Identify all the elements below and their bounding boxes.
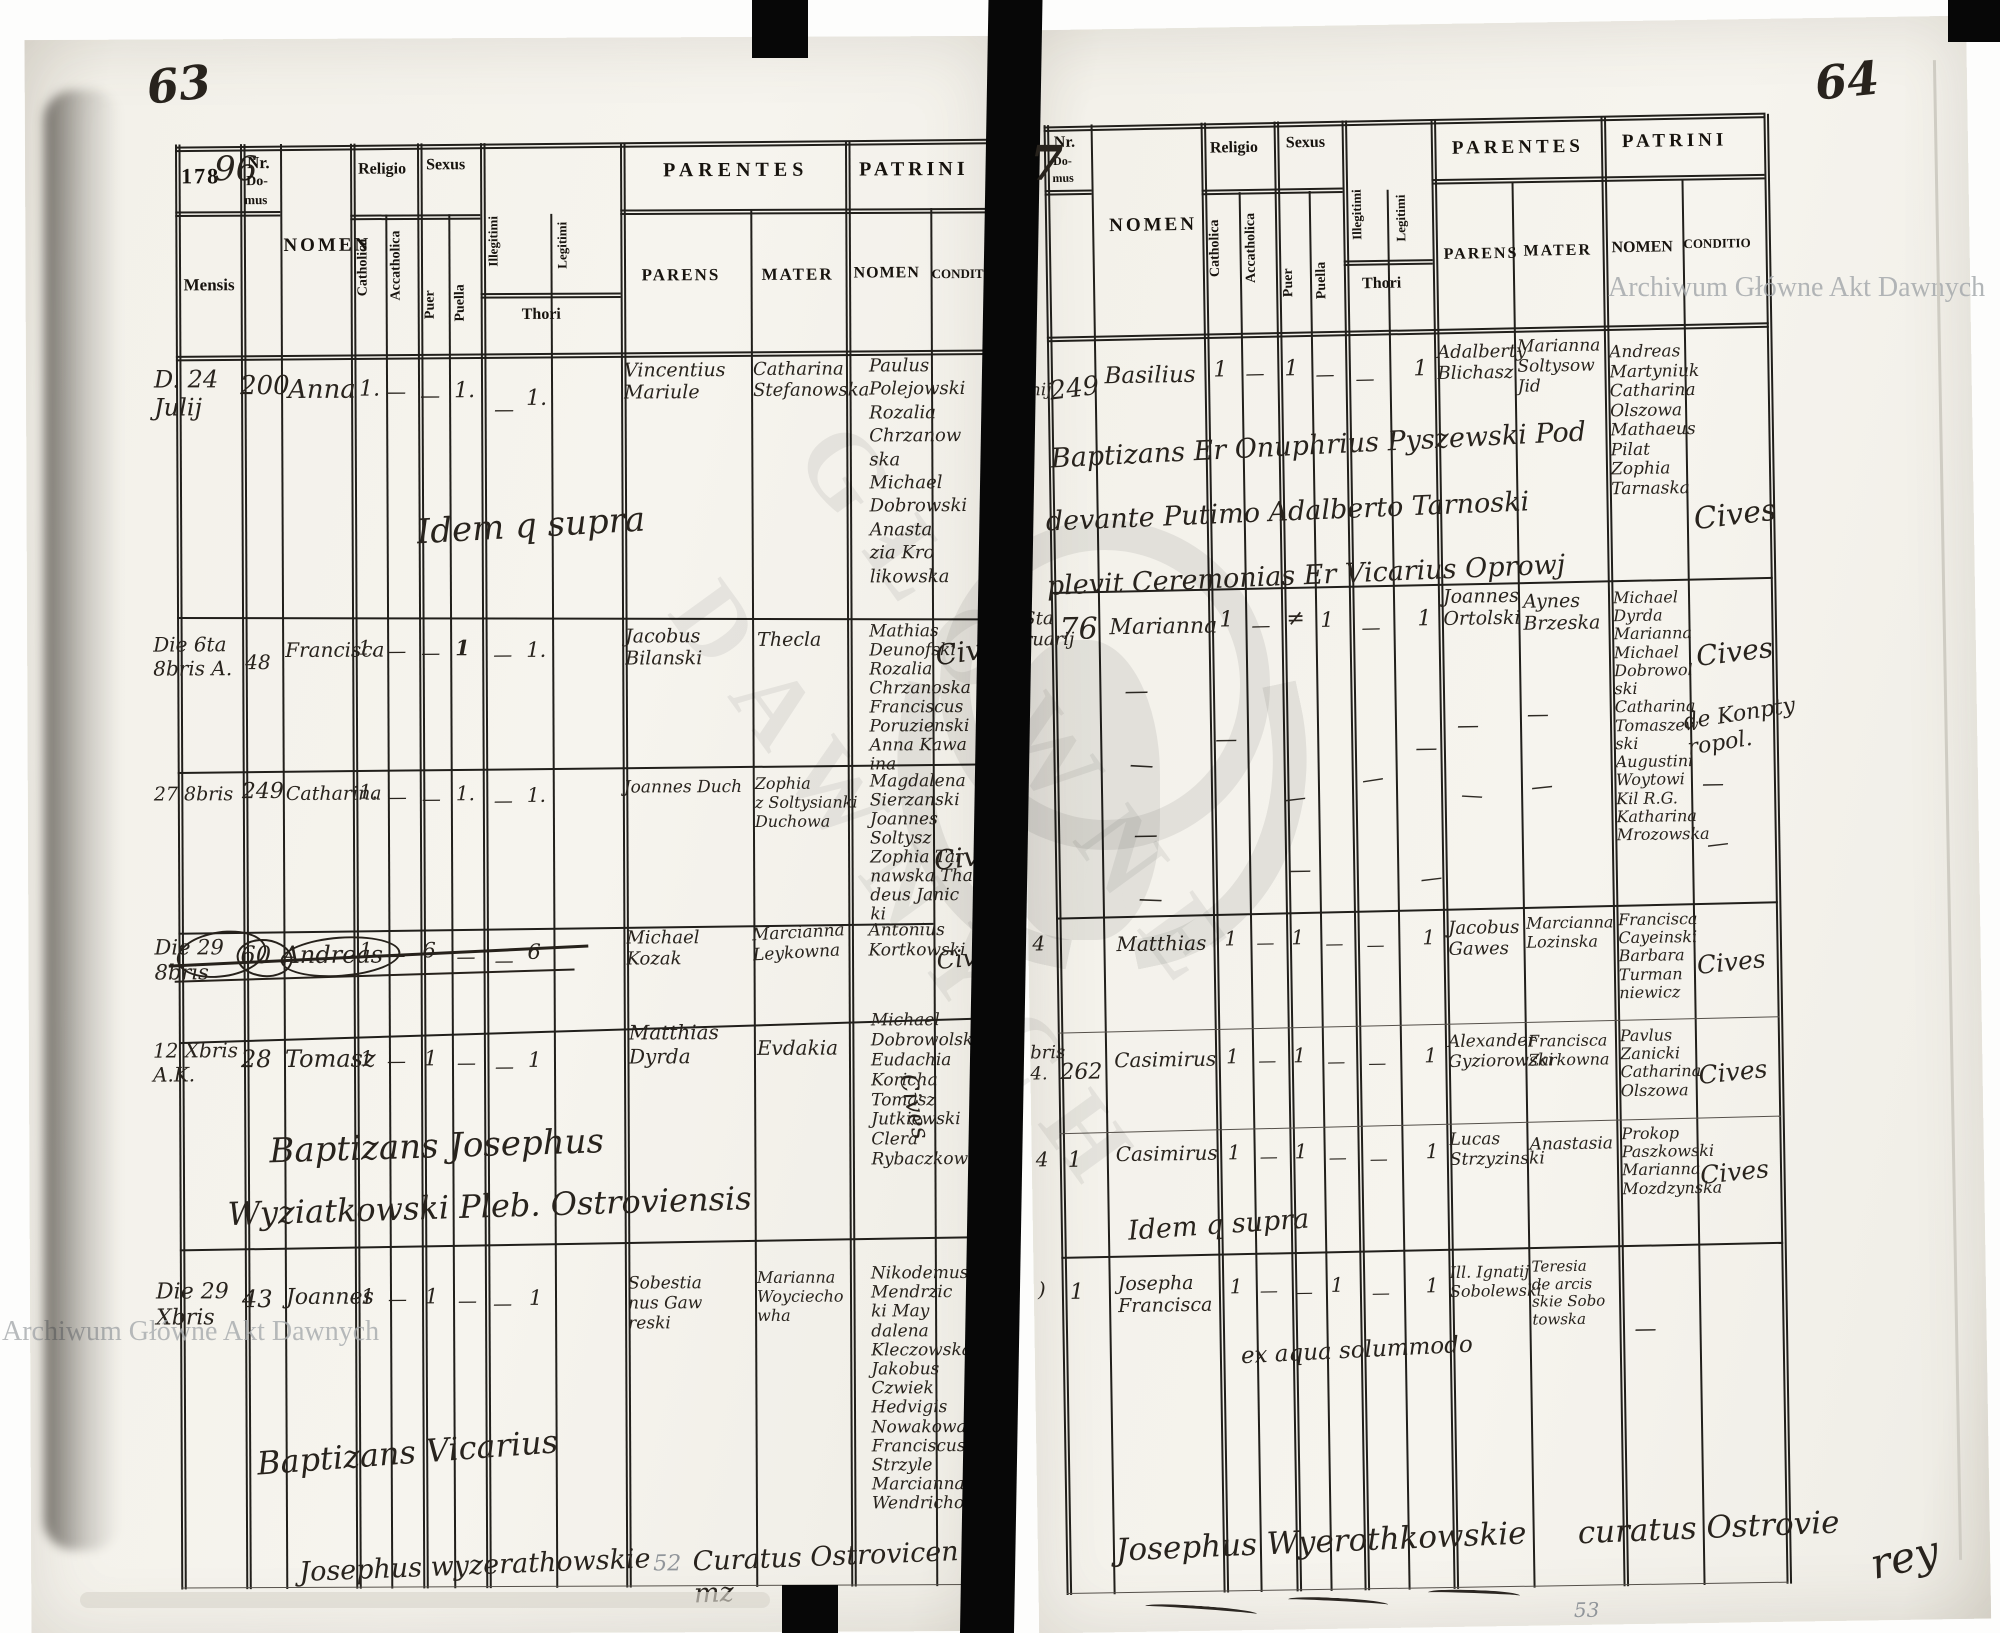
- row-line: [177, 617, 990, 620]
- header-mater: MATER: [762, 265, 834, 285]
- header-puer: Puer: [423, 290, 439, 319]
- entry-conditio: Cives: [1692, 493, 1778, 538]
- col-line: [1309, 191, 1333, 1591]
- entry-mater: Francisca Zarkowna: [1528, 1031, 1610, 1070]
- col-line: [240, 144, 248, 1589]
- col-line: [550, 214, 558, 1588]
- row-line: [1044, 113, 1766, 129]
- mark-illegitimi: —: [1372, 1283, 1390, 1305]
- col-line: [350, 144, 358, 1589]
- mark-legitimi: 1: [1417, 606, 1431, 632]
- ditto-mark: —: [1527, 702, 1549, 727]
- entry-parens: Matthias Dyrda: [629, 1021, 719, 1069]
- mark-puella: —: [1329, 1148, 1347, 1170]
- mark-puer: 1: [424, 1046, 437, 1071]
- signature-right-part2: curatus Ostrovie: [1577, 1504, 1840, 1552]
- ditto-mark: —: [1460, 783, 1483, 809]
- mark-puella: —: [457, 1052, 476, 1074]
- paper-edge-bottom-left: [80, 1592, 770, 1608]
- watermark-archive-top-right: Archiwum Główne Akt Dawnych: [1608, 272, 1985, 304]
- note-ex-aqua: ex aqua solummodo: [1240, 1332, 1473, 1371]
- mark-acatholica: —: [1245, 363, 1264, 386]
- header-sexus: Sexus: [426, 156, 465, 174]
- col-line: [1387, 190, 1411, 1590]
- mark-illegitimi: —: [494, 790, 513, 812]
- mark-legitimi: 1: [528, 1048, 541, 1073]
- entry-date: Die 6ta 8bris A.: [153, 633, 232, 681]
- entry-mater: Evdakia: [757, 1037, 838, 1061]
- mark-puella: —: [458, 1290, 477, 1312]
- mark-legitimi: 1: [1426, 1140, 1439, 1164]
- entry-nr: 1: [1070, 1280, 1084, 1306]
- ditto-mark: —: [1457, 713, 1479, 738]
- entry-date: ): [1038, 1278, 1046, 1302]
- mark-acatholica: —: [387, 640, 406, 662]
- row-line: [481, 293, 621, 296]
- mark-puer: —: [420, 384, 440, 408]
- header-parens: PARENS: [642, 265, 721, 285]
- entry-conditio: Cives: [1695, 944, 1767, 980]
- row-line: [175, 139, 988, 149]
- entry-patrini: —: [1634, 1317, 1656, 1343]
- entry-mater: Marianna Woyciecho wha: [757, 1269, 844, 1326]
- header-religio: Religio: [358, 160, 406, 178]
- row-line: [620, 208, 988, 212]
- col-line: [1342, 120, 1367, 1590]
- mark-acatholica: —: [1260, 1147, 1278, 1169]
- col-line: [750, 209, 758, 1587]
- mark-legitimi: 1.: [526, 386, 547, 412]
- note-baptizans-line2: Wyziatkowski Pleb. Ostroviensis: [227, 1180, 752, 1234]
- entry-name: Anna: [288, 375, 356, 406]
- mark-illegitimi: —: [1370, 1149, 1388, 1171]
- note-baptizans-line1: Baptizans Er Onuphrius Pyszewski Pod: [1050, 416, 1587, 475]
- right-page-number: 64: [1812, 50, 1881, 111]
- header-legitimi: Legitimi: [1393, 194, 1410, 241]
- header-patrini: PATRINI: [1622, 129, 1728, 153]
- entry-mater: Marcianna Lozinska: [1526, 913, 1614, 952]
- mark-legitimi: 1: [1424, 1044, 1437, 1068]
- ditto-mark: —: [1702, 772, 1724, 797]
- row-line: [180, 1236, 993, 1251]
- mark-puer: 1: [1291, 926, 1304, 950]
- entry-parens: Adalberty Blichasz: [1437, 341, 1527, 385]
- mark-acatholica: —: [386, 380, 406, 404]
- mark-legitimi: 1: [1426, 1274, 1439, 1298]
- col-line: [417, 143, 425, 1588]
- mark-acatholica: —: [1260, 1281, 1278, 1303]
- header-parentes: PARENTES: [663, 159, 808, 183]
- ditto-mark: —: [1289, 858, 1311, 883]
- entry-conditio: Cives: [1699, 1154, 1771, 1190]
- mark-illegitimi: —: [1355, 368, 1374, 391]
- mark-puer: 1: [1293, 1044, 1306, 1068]
- note-idem-supra: Idem q supra: [1127, 1203, 1310, 1247]
- entry-parens: Michael Kozak: [626, 927, 699, 970]
- header-illegitimi: Illegitimi: [485, 216, 501, 267]
- mark-catholica: 1: [1226, 1045, 1239, 1069]
- header-religio: Religio: [1210, 139, 1258, 158]
- ditto-mark: —: [1530, 773, 1554, 800]
- mark-illegitimi: —: [1368, 1053, 1386, 1075]
- entry-parens: Sobestia nus Gaw reski: [628, 1273, 703, 1333]
- mark-puella: —: [1325, 934, 1343, 956]
- entry-name: Josepha Francisca: [1118, 1272, 1213, 1318]
- col-line: [385, 215, 393, 1589]
- entry-parens: Jacobus Gawes: [1448, 917, 1520, 961]
- entry-nr: 249: [242, 779, 284, 805]
- header-parentes: PARENTES: [1452, 136, 1584, 160]
- row-line: [176, 349, 989, 357]
- mark-catholica: 1: [360, 1047, 373, 1072]
- entry-patrini: Francisca Cayeinski Barbara Turman niewi…: [1618, 910, 1699, 1002]
- ditto-mark: —: [1706, 830, 1731, 857]
- header-nr-line2: Do-: [246, 174, 268, 190]
- mark-legitimi: 1: [1413, 356, 1427, 382]
- col-line: [1600, 116, 1625, 1586]
- header-patrini-nomen: NOMEN: [854, 264, 920, 282]
- mark-puer: —: [422, 788, 441, 810]
- header-legitimi: Legitimi: [554, 222, 570, 269]
- col-line: [1431, 119, 1456, 1589]
- header-acatholica: Accatholica: [388, 230, 404, 300]
- mark-catholica: 1: [1228, 1141, 1241, 1165]
- mark-acatholica: —: [388, 1288, 407, 1310]
- entry-mater: Marcianna Leykowna: [751, 920, 846, 965]
- row-line: [1431, 174, 1764, 181]
- spine-shadow-left: [44, 90, 120, 1550]
- header-illegitimi: Illegitimi: [1349, 189, 1366, 240]
- entry-conditio: Cives: [1697, 1054, 1769, 1090]
- row-line: [1047, 322, 1769, 338]
- pencil-number: 53: [1574, 1598, 1600, 1622]
- mark-catholica: 1: [361, 1285, 374, 1310]
- entry-mater: Catharina Stefanowska: [753, 358, 870, 401]
- mark-acatholica: —: [387, 1050, 406, 1072]
- col-line: [480, 143, 488, 1588]
- entry-parens: Vincentius Mariule: [624, 359, 726, 404]
- signature-right-part1: Josephus Wyerothkowskie: [1115, 1515, 1527, 1569]
- pencil-number: 52: [653, 1551, 681, 1576]
- mark-catholica: 1.: [358, 637, 377, 661]
- row-line: [175, 211, 280, 213]
- scanned-register-spread: 63 178 96 Nr. Do- mus Mensis: [0, 0, 2000, 1633]
- entry-nr: 200: [240, 371, 290, 402]
- col-line: [448, 214, 456, 1588]
- header-thori: Thori: [522, 306, 561, 324]
- entry-mater: Anastasia: [1529, 1133, 1613, 1154]
- ditto-mark: —: [1419, 865, 1444, 892]
- mark-puella: 1: [455, 636, 470, 661]
- header-mensis: Mensis: [184, 275, 235, 295]
- entry-name: Basilius: [1104, 362, 1196, 391]
- header-nomen: NOMEN: [1109, 214, 1197, 237]
- header-acatholica: Accatholica: [1243, 213, 1260, 283]
- entry-nr: 249: [1048, 371, 1101, 407]
- header-puella: Puella: [453, 284, 469, 321]
- mark-puer: ≠: [1286, 606, 1305, 632]
- header-patrini-nomen: NOMEN: [1611, 238, 1673, 257]
- mark-legitimi: 1.: [526, 638, 546, 663]
- mark-puer: —: [421, 642, 440, 664]
- entry-nr: 43: [242, 1285, 273, 1313]
- mark-catholica: 1: [1213, 357, 1227, 383]
- header-parens: PARENS: [1443, 245, 1518, 264]
- entry-mater: Teresia de arcis skie Sobo towska: [1531, 1258, 1605, 1330]
- mark-acatholica: —: [1258, 1051, 1276, 1073]
- gutter-band-bottom: [782, 1585, 838, 1633]
- col-line: [1763, 114, 1788, 1584]
- mark-puer: 1: [1295, 1140, 1308, 1164]
- mark-puer: 1: [1284, 356, 1298, 382]
- entry-name: Casimirus: [1114, 1048, 1216, 1073]
- mark-puella: 1: [1331, 1274, 1344, 1298]
- header-puer: Puer: [1281, 268, 1297, 297]
- mark-illegitimi: —: [495, 1056, 514, 1078]
- mark-puer: 1: [425, 1284, 438, 1309]
- mark-catholica: 1.: [359, 377, 380, 403]
- mark-puer: —: [1295, 1282, 1313, 1304]
- mark-acatholica: —: [388, 786, 407, 808]
- signature-right-flourish: rey: [1865, 1526, 1943, 1590]
- entry-date: 12 Xbris A.K.: [153, 1039, 238, 1087]
- ditto-mark: —: [1360, 766, 1386, 794]
- mark-illegitimi: —: [493, 644, 512, 666]
- mark-puella: 1.: [454, 378, 475, 404]
- mark-catholica: 1: [1230, 1275, 1243, 1299]
- corner-band-top-right: [1948, 0, 2000, 42]
- header-nr-line1: Nr.: [247, 153, 270, 173]
- row-line: [350, 214, 480, 217]
- mark-catholica: 1.: [359, 781, 378, 805]
- note-baptizans-vicarius: Baptizans Vicarius: [256, 1423, 560, 1483]
- entry-date: D. 24 Julij: [154, 365, 218, 422]
- mark-puella: —: [1315, 364, 1334, 387]
- left-page-number: 63: [144, 54, 214, 115]
- header-catholica: Catholica: [355, 239, 371, 297]
- row-line: [179, 1017, 992, 1044]
- entry-nr: 48: [245, 651, 271, 675]
- entry-patrini: Andreas Martyniuk Catharina Olszowa Math…: [1609, 342, 1701, 500]
- header-thori: Thori: [1362, 275, 1401, 294]
- mark-puella: 1.: [456, 782, 475, 806]
- entry-mater: Aynes Brzeska: [1523, 590, 1601, 636]
- mark-illegitimi: —: [493, 1293, 512, 1315]
- col-line: [280, 144, 288, 1589]
- header-conditio: CONDITIO: [1683, 235, 1750, 252]
- entry-date: 27 8bris: [154, 783, 233, 806]
- ditto-mark: —: [1415, 736, 1437, 761]
- mark-legitimi: 1.: [527, 784, 546, 808]
- header-puella: Puella: [1314, 262, 1331, 300]
- mark-illegitimi: —: [494, 950, 513, 972]
- mark-puer: 6: [422, 938, 435, 963]
- header-mater: MATER: [1523, 242, 1592, 261]
- header-sexus: Sexus: [1286, 134, 1325, 153]
- mark-illegitimi: —: [494, 398, 514, 422]
- row-line: [1202, 187, 1343, 191]
- entry-parens: Joannes Ortolski: [1443, 585, 1521, 631]
- mark-illegitimi: —: [1361, 617, 1380, 640]
- header-patrini: PATRINI: [859, 158, 969, 181]
- header-nr-line3: mus: [244, 192, 267, 208]
- entry-parens: Ill. Ignatij Sobolewski: [1449, 1263, 1541, 1302]
- col-line: [175, 144, 183, 1589]
- entry-mater: Marianna Soltysow Jid: [1517, 335, 1601, 396]
- entry-patrini: Pavlus Zanicki Catharina Olszowa: [1620, 1026, 1702, 1100]
- gutter-band-top: [752, 0, 808, 58]
- signature-left-part1: Josephus wyzerathowskie: [299, 1543, 651, 1589]
- mark-legitimi: 1: [1422, 926, 1435, 950]
- mark-puella: 1: [1320, 608, 1334, 633]
- hand-seven: 7: [1030, 136, 1063, 193]
- header-catholica: Catholica: [1207, 219, 1224, 277]
- mark-illegitimi: —: [1366, 935, 1384, 957]
- mark-legitimi: 1: [529, 1286, 542, 1311]
- entry-parens: Joannes Duch: [624, 777, 742, 798]
- mark-legitimi: 6: [527, 940, 540, 965]
- mark-puella: —: [1327, 1052, 1345, 1074]
- entry-nr: 28: [241, 1045, 272, 1073]
